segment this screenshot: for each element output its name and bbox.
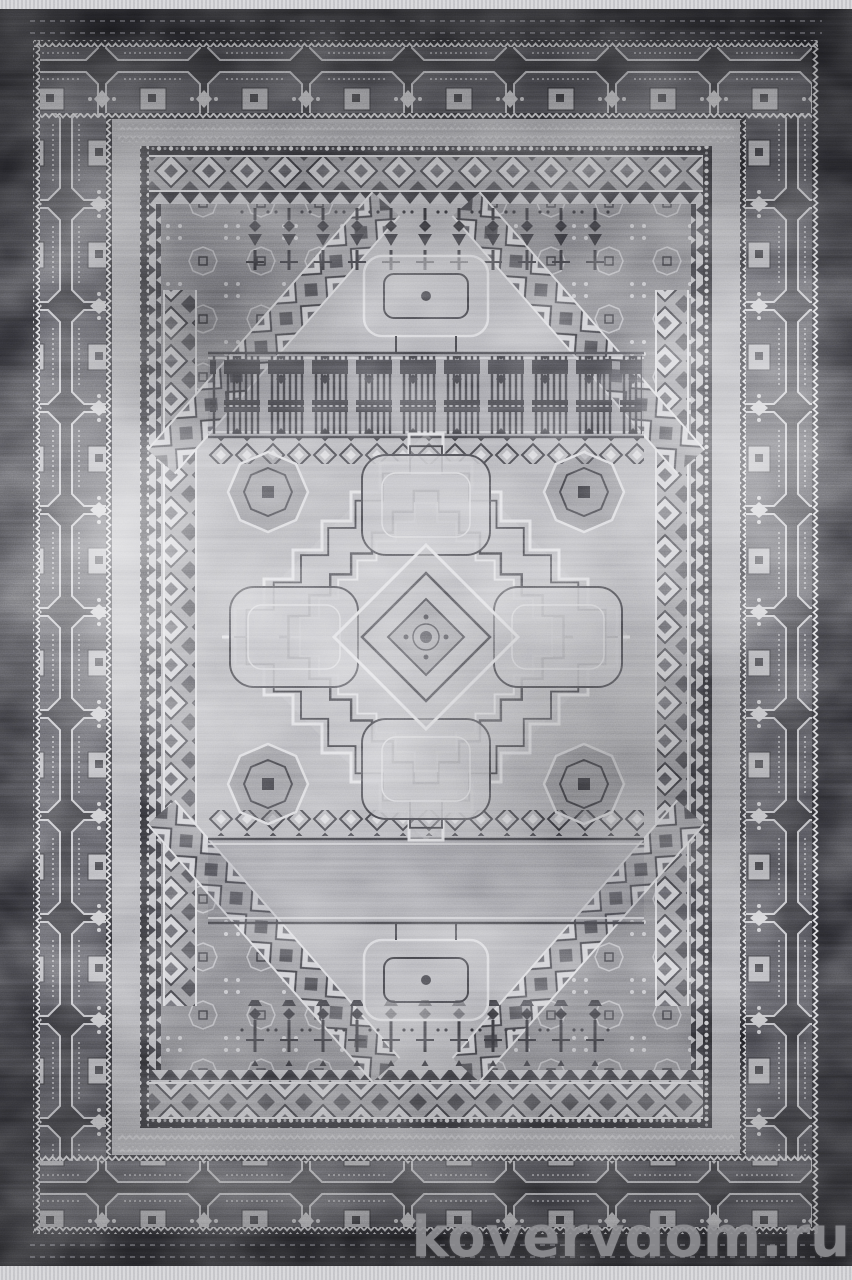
rug-artwork <box>0 0 852 1280</box>
rug-body <box>0 0 852 1280</box>
texture-overlays <box>0 0 852 1280</box>
rug-photo: kovervdom.ru <box>0 0 852 1280</box>
